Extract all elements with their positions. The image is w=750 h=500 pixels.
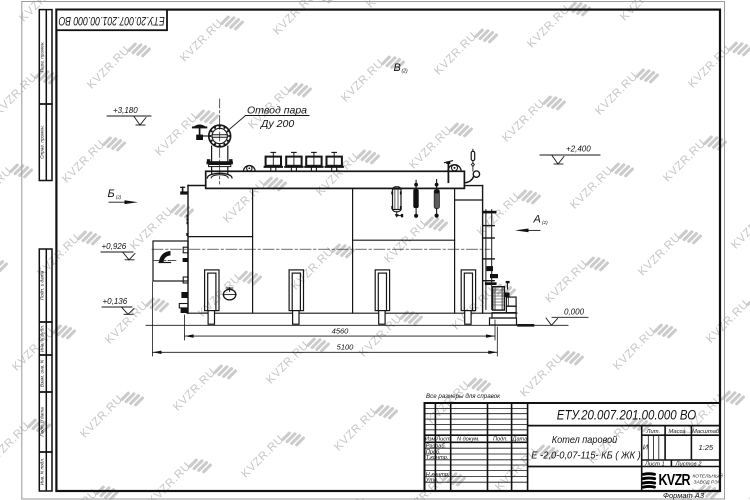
svg-text:Масштаб: Масштаб	[692, 429, 720, 435]
svg-text:(2): (2)	[116, 195, 122, 200]
svg-text:ЕТУ.20.007.201.00.000 ВО: ЕТУ.20.007.201.00.000 ВО	[557, 408, 697, 423]
svg-text:Изм: Изм	[425, 437, 436, 443]
svg-text:Е -2,0-0,07-115- КБ ( ЖК ): Е -2,0-0,07-115- КБ ( ЖК )	[531, 450, 640, 462]
svg-text:Лист: Лист	[435, 437, 451, 443]
svg-text:4560: 4560	[332, 326, 350, 335]
svg-text:Листов 2: Листов 2	[675, 461, 703, 467]
svg-text:+0,136: +0,136	[103, 297, 128, 306]
svg-text:Лист 1: Лист 1	[644, 461, 665, 467]
svg-text:КОТЕЛЬНЫЙ: КОТЕЛЬНЫЙ	[693, 472, 724, 480]
svg-text:Все размеры для справок: Все размеры для справок	[426, 393, 501, 400]
svg-text:И: И	[643, 443, 649, 452]
svg-text:N докум.: N докум.	[457, 437, 480, 443]
svg-text:Б: Б	[108, 188, 115, 200]
svg-text:Подп. и дата: Подп. и дата	[40, 407, 45, 437]
svg-text:Утв.: Утв.	[425, 478, 439, 484]
svg-text:KVZR: KVZR	[659, 471, 692, 489]
svg-text:(2): (2)	[542, 220, 548, 225]
svg-text:Ду 200: Ду 200	[260, 118, 294, 130]
svg-text:5100: 5100	[337, 343, 355, 352]
svg-text:+3,180: +3,180	[113, 106, 138, 115]
svg-text:В: В	[394, 62, 401, 74]
svg-text:Инв. N дубл.: Инв. N дубл.	[40, 325, 45, 352]
svg-text:+2,400: +2,400	[566, 145, 591, 154]
svg-text:Т.контр.: Т.контр.	[426, 455, 449, 461]
svg-text:Масса: Масса	[669, 429, 687, 435]
svg-text:0,000: 0,000	[564, 308, 585, 317]
svg-text:1:25: 1:25	[699, 443, 714, 452]
svg-text:Взам. инв. N: Взам. инв. N	[40, 359, 45, 387]
svg-text:Подп.: Подп.	[493, 437, 508, 443]
svg-text:Отвод пара: Отвод пара	[247, 105, 307, 117]
svg-text:Инв. N подл.: Инв. N подл.	[40, 458, 45, 485]
svg-text:Справ. примен.: Справ. примен.	[40, 125, 45, 159]
svg-text:Формат А3: Формат А3	[663, 491, 705, 500]
svg-text:Дата: Дата	[512, 437, 528, 443]
svg-text:Подп. и дата: Подп. и дата	[40, 270, 45, 300]
svg-text:(2): (2)	[402, 69, 408, 75]
svg-text:Перв. примен.: Перв. примен.	[40, 41, 45, 72]
svg-text:Котел паровой: Котел паровой	[552, 434, 618, 446]
svg-text:+0,926: +0,926	[102, 242, 127, 251]
svg-text:А: А	[533, 214, 541, 226]
svg-text:ЗАВОД РЭП: ЗАВОД РЭП	[694, 480, 722, 486]
svg-text:Лит.: Лит.	[646, 429, 661, 435]
svg-text:ЕТУ.20.007.201.00.000 ВО: ЕТУ.20.007.201.00.000 ВО	[59, 13, 165, 25]
